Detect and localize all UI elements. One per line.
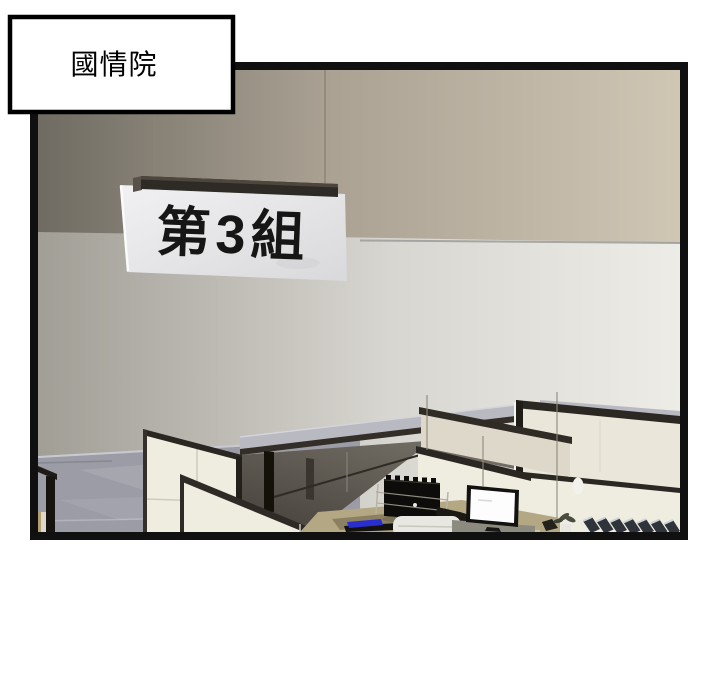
sign-bar-end-cap — [133, 176, 142, 192]
sign-text: 第3組 — [155, 202, 310, 268]
caption-text: 國情院 — [70, 49, 157, 80]
crate-body — [384, 479, 440, 520]
monitor-screen-line — [478, 500, 492, 501]
caption-box: 國情院 — [10, 17, 233, 112]
crate-dot — [413, 503, 417, 507]
chair-shade — [398, 526, 456, 527]
interior-post-2 — [306, 458, 314, 500]
corner-cream-sliver — [41, 512, 46, 532]
front-partition-left-trim — [180, 475, 184, 532]
plant-pot — [561, 524, 571, 532]
interior-post — [264, 451, 274, 512]
mug — [573, 478, 584, 495]
corner-post — [46, 476, 55, 532]
back-partition-left-trim — [143, 429, 147, 532]
comic-panel-scene: 第3組 — [0, 0, 720, 700]
comic-page: 第3組 — [0, 0, 720, 700]
monitor-screen — [470, 489, 515, 523]
